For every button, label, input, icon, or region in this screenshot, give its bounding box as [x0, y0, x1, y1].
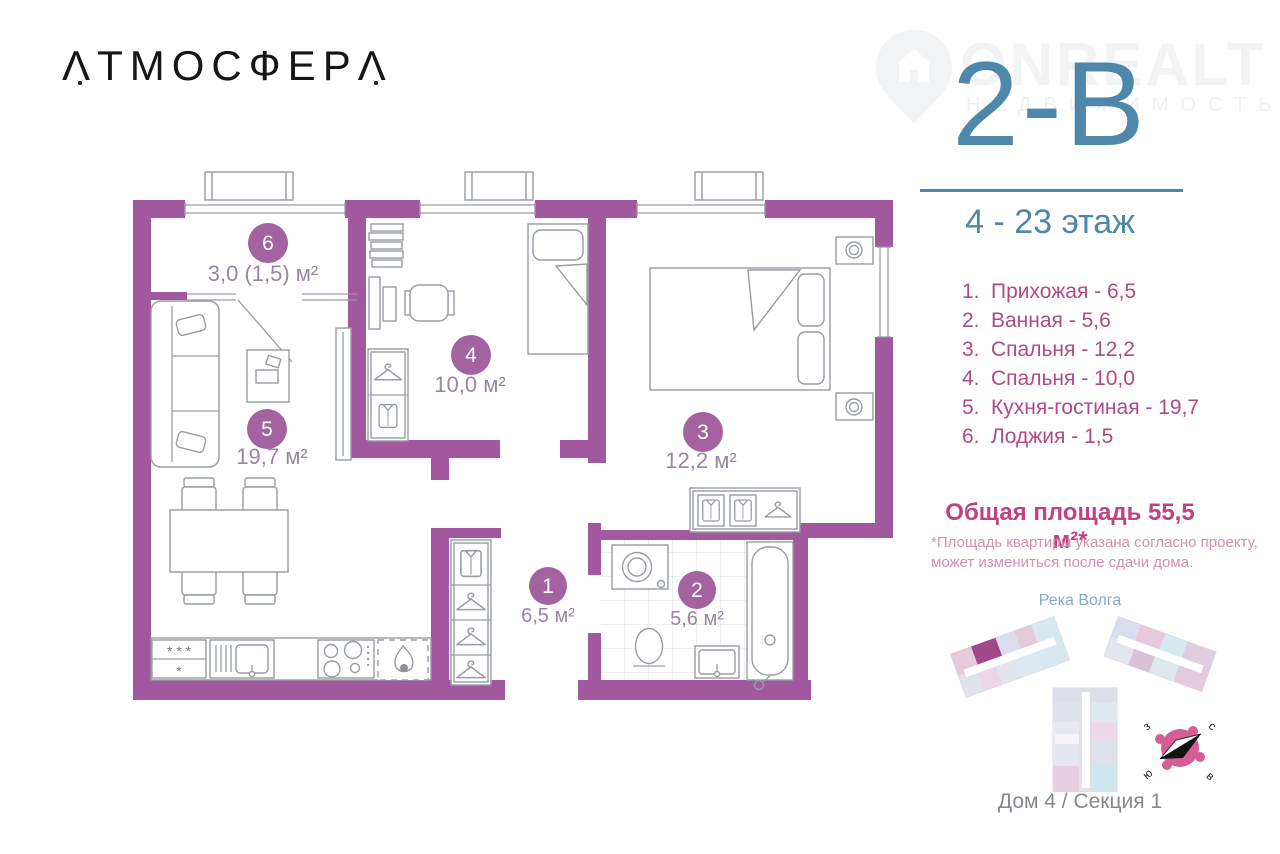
sofa	[151, 301, 219, 467]
site-building-2	[1104, 616, 1216, 691]
bookshelf	[369, 224, 403, 267]
svg-text:10,0 м²: 10,0 м²	[434, 372, 505, 397]
shirt-icon	[735, 500, 752, 521]
floors-range: 4 - 23 этаж	[900, 203, 1200, 242]
room-list-item: 3.Спальня - 12,2	[962, 335, 1199, 364]
nightstand	[836, 393, 873, 420]
nightstand	[836, 237, 873, 264]
building-section-caption: Дом 4 / Секция 1	[930, 790, 1230, 814]
kitchen-counter: * * * *	[151, 638, 431, 680]
hallway-closet	[451, 540, 491, 685]
compass-south-label: ю	[1141, 767, 1156, 782]
desk	[369, 277, 396, 329]
sink	[210, 640, 274, 678]
shirt-icon	[703, 500, 720, 521]
desk-chair	[405, 285, 454, 321]
room-bedroom-4	[368, 224, 588, 441]
side-table	[247, 350, 289, 402]
gas-flame-icon	[378, 640, 428, 680]
room-list: 1.Прихожая - 6,5 2.Ванная - 5,6 3.Спальн…	[962, 277, 1199, 451]
svg-text:6,5 м²: 6,5 м²	[521, 605, 575, 627]
plan-code-title: 2-В	[900, 28, 1200, 180]
floorplan: * * * *	[118, 160, 908, 775]
room-list-item: 2.Ванная - 5,6	[962, 306, 1199, 335]
single-bed	[528, 224, 588, 354]
compass-west-label: з	[1141, 720, 1153, 733]
room-list-item: 5.Кухня-гостиная - 19,7	[962, 393, 1199, 422]
svg-text:* * *: * * *	[167, 643, 192, 659]
room-bedroom-3	[650, 237, 873, 420]
compass-icon: з с ю в	[1141, 720, 1218, 783]
area-footnote: *Площадь квартиры указана согласно проек…	[931, 533, 1258, 573]
developer-logo: ΛТМОСФЕРΛ	[62, 42, 393, 90]
shirt-icon	[461, 551, 481, 577]
site-building-1	[950, 617, 1069, 698]
compass-east-label: в	[1204, 770, 1216, 783]
flyer-canvas: ΛТМОСФЕРΛ ONREALT НЕДВИЖИМОСТЬ 2-В 4 - 2…	[0, 0, 1280, 854]
built-in-wardrobe	[690, 488, 800, 532]
room-list-item: 6.Лоджия - 1,5	[962, 422, 1199, 451]
shirt-icon	[379, 405, 397, 428]
river-label: Река Волга	[930, 592, 1230, 610]
svg-text:3,0 (1,5) м²: 3,0 (1,5) м²	[208, 261, 319, 286]
compass-north-label: с	[1206, 720, 1218, 733]
bathroom-sink	[695, 646, 739, 678]
dining-set	[170, 478, 288, 604]
bathtub	[747, 542, 793, 690]
title-divider	[920, 189, 1183, 192]
svg-text:6: 6	[262, 232, 274, 255]
svg-text:4: 4	[465, 344, 477, 367]
svg-text:2: 2	[691, 579, 703, 602]
site-building-3	[1053, 688, 1117, 792]
svg-text:3: 3	[697, 421, 709, 444]
site-plan: з с ю в	[935, 612, 1235, 792]
fridge: * * * *	[152, 640, 206, 679]
svg-text:5,6 м²: 5,6 м²	[670, 608, 724, 630]
wardrobe	[368, 349, 408, 441]
svg-text:1: 1	[542, 575, 554, 598]
svg-text:*: *	[176, 663, 182, 679]
svg-text:5: 5	[261, 418, 273, 441]
exterior-vents	[205, 172, 763, 200]
cooktop	[318, 640, 374, 678]
room-list-item: 4.Спальня - 10,0	[962, 364, 1199, 393]
washing-machine	[612, 545, 668, 589]
svg-text:12,2 м²: 12,2 м²	[665, 448, 736, 473]
room-list-item: 1.Прихожая - 6,5	[962, 277, 1199, 306]
svg-text:19,7 м²: 19,7 м²	[236, 444, 307, 469]
tv-unit	[336, 328, 351, 460]
